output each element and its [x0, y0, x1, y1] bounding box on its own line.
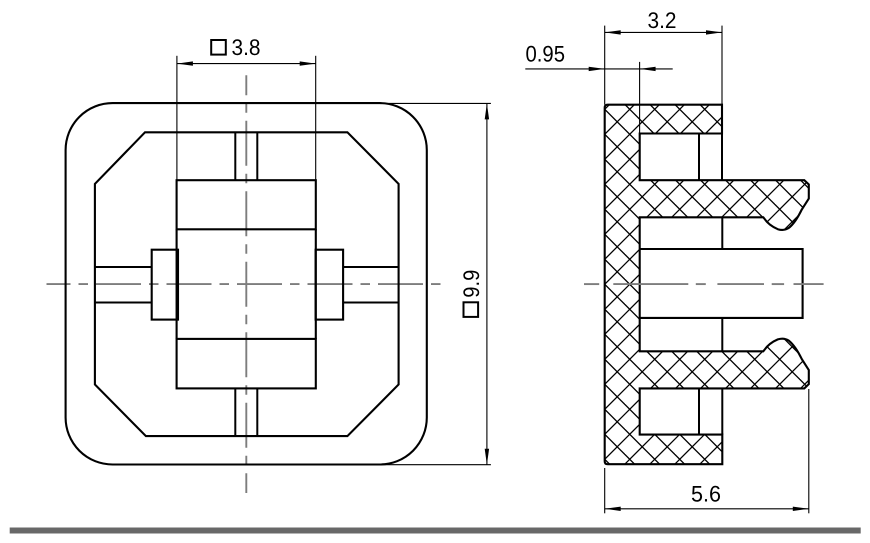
svg-text:9.9: 9.9 — [459, 270, 484, 298]
svg-text:3.2: 3.2 — [648, 8, 677, 33]
svg-text:5.6: 5.6 — [691, 482, 721, 507]
svg-text:3.8: 3.8 — [232, 35, 261, 60]
svg-text:0.95: 0.95 — [526, 42, 566, 67]
